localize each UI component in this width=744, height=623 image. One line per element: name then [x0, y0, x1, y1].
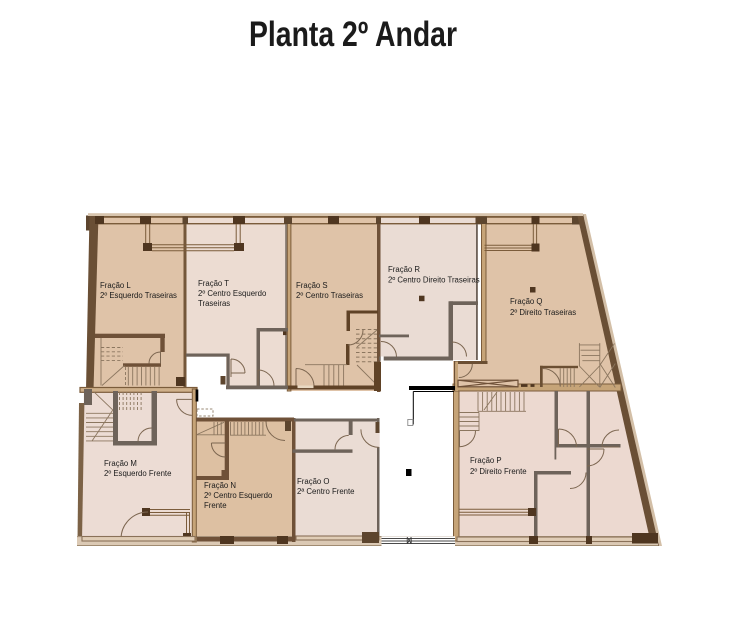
- svg-text:Fração O: Fração O: [297, 477, 330, 486]
- svg-text:Fração S: Fração S: [296, 281, 328, 290]
- svg-text:2ª Centro Frente: 2ª Centro Frente: [297, 487, 355, 496]
- svg-text:Fração M: Fração M: [104, 459, 137, 468]
- svg-text:2º Centro Traseiras: 2º Centro Traseiras: [296, 291, 363, 300]
- svg-text:2º Esquerdo Frente: 2º Esquerdo Frente: [104, 469, 171, 478]
- svg-text:2º Direito Traseiras: 2º Direito Traseiras: [510, 308, 576, 317]
- svg-text:Frente: Frente: [204, 501, 227, 510]
- svg-text:2º Centro Direito Traseiras: 2º Centro Direito Traseiras: [388, 276, 480, 285]
- svg-text:Fração Q: Fração Q: [510, 297, 543, 306]
- svg-text:2º Centro Esquerdo: 2º Centro Esquerdo: [198, 289, 267, 298]
- svg-text:2º Direito Frente: 2º Direito Frente: [470, 467, 527, 476]
- svg-text:Traseiras: Traseiras: [198, 299, 230, 308]
- svg-text:2º Centro Esquerdo: 2º Centro Esquerdo: [204, 491, 273, 500]
- svg-text:Fração N: Fração N: [204, 481, 236, 490]
- svg-text:Fração P: Fração P: [470, 456, 502, 465]
- svg-text:Fração L: Fração L: [100, 281, 131, 290]
- svg-text:Fração T: Fração T: [198, 279, 229, 288]
- svg-text:2º Esquerdo Traseiras: 2º Esquerdo Traseiras: [100, 291, 177, 300]
- svg-text:Fração R: Fração R: [388, 265, 420, 274]
- svg-text:Planta 2º Andar: Planta 2º Andar: [249, 15, 457, 54]
